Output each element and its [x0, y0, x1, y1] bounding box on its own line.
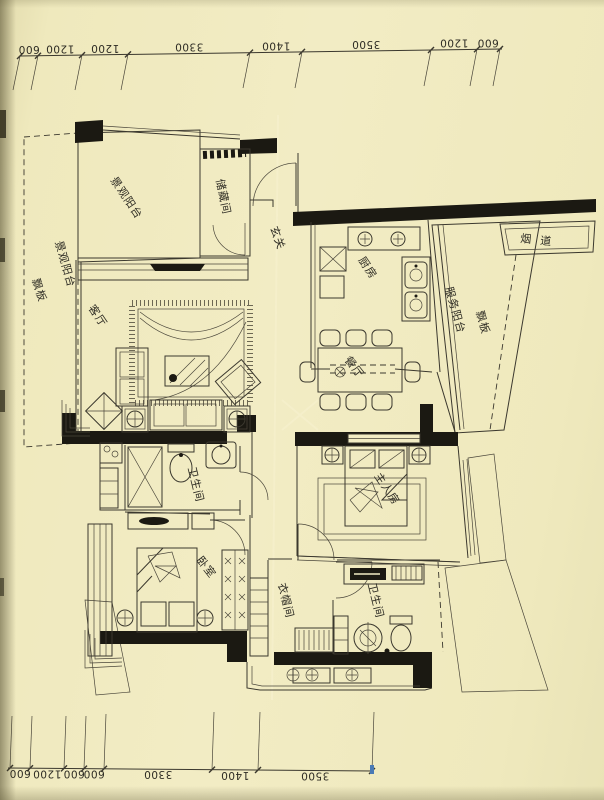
east-strip [468, 454, 506, 563]
floorplan-scan: 600 1200 1200 3300 1400 3500 1200 600 60… [0, 0, 604, 800]
label-storage-room: 储藏间 [213, 178, 234, 216]
label-piaoban-right: 飘板 [473, 309, 493, 336]
southeast-corner-strip [445, 560, 548, 692]
master-furniture [318, 446, 430, 540]
bathroom1-fixtures [100, 442, 236, 529]
floorplan-drawing: 600 1200 1200 3300 1400 3500 1200 600 60… [0, 0, 604, 800]
dim-top-4: 3300 [175, 41, 204, 53]
dim-top-7: 1200 [440, 37, 469, 49]
dim-top-6: 3500 [352, 38, 381, 50]
south-bay-window [247, 662, 432, 690]
label-piaoban-left: 飘板 [29, 277, 50, 304]
dim-bot-5: 3300 [144, 768, 173, 780]
label-service-balcony: 服务阳台 [442, 285, 469, 335]
label-kitchen: 厨房 [356, 254, 380, 281]
dimension-line-top: 600 1200 1200 3300 1400 3500 1200 600 [13, 37, 503, 91]
door-arcs [210, 223, 372, 598]
label-master-bedroom: 主人房 [372, 470, 403, 507]
master-window-inset [348, 434, 420, 443]
diamond-side-table [86, 393, 123, 430]
label-entry-hall: 玄关 [267, 224, 288, 251]
dim-top-2: 1200 [46, 43, 75, 55]
armchair [215, 360, 260, 405]
dim-top-8: 600 [477, 37, 499, 49]
room-labels: 飘板 景观阳台 景观阳台 储藏间 玄关 厨房 烟道 服务阳台 飘板 客厅 餐厅 … [29, 174, 561, 620]
dim-bot-1: 600 [9, 767, 31, 779]
dim-bot-2: 1200 [33, 767, 62, 779]
label-flue: 烟道 [520, 231, 561, 249]
cloakroom-fixtures [295, 628, 333, 652]
end-table-left [122, 406, 148, 432]
label-cloakroom: 衣帽间 [275, 581, 297, 619]
dim-top-5: 1400 [262, 39, 291, 51]
label-scenic-balcony-left: 景观阳台 [52, 239, 79, 289]
glass-coffee-table [165, 356, 209, 386]
label-bathroom-2: 卫生间 [365, 581, 387, 619]
southwest-corner-strip [85, 600, 130, 695]
dim-bot-4: 600 [83, 768, 105, 780]
closet-column [250, 578, 268, 656]
scenic-balcony-area [78, 130, 200, 262]
dim-bot-3: 600 [63, 768, 85, 780]
dim-top-1: 600 [18, 43, 40, 55]
dim-bot-6: 1400 [221, 769, 250, 781]
label-dining-room: 餐厅 [342, 353, 368, 381]
wardrobe [222, 550, 248, 630]
dim-top-3: 1200 [91, 42, 120, 54]
sofa [116, 348, 222, 430]
living-room-furniture [86, 303, 261, 432]
kitchen-sink [402, 257, 430, 321]
blue-scan-mark [370, 765, 374, 774]
label-bedroom: 卧室 [194, 553, 220, 581]
label-living-room: 客厅 [86, 302, 111, 330]
storage-window-sill [203, 153, 246, 155]
label-bathroom-1: 卫生间 [185, 465, 207, 503]
label-scenic-balcony-main: 景观阳台 [108, 174, 146, 222]
dimension-line-bottom: 600 1200 600 600 3300 1400 3500 [7, 712, 375, 781]
dim-bot-7: 3500 [301, 769, 330, 781]
